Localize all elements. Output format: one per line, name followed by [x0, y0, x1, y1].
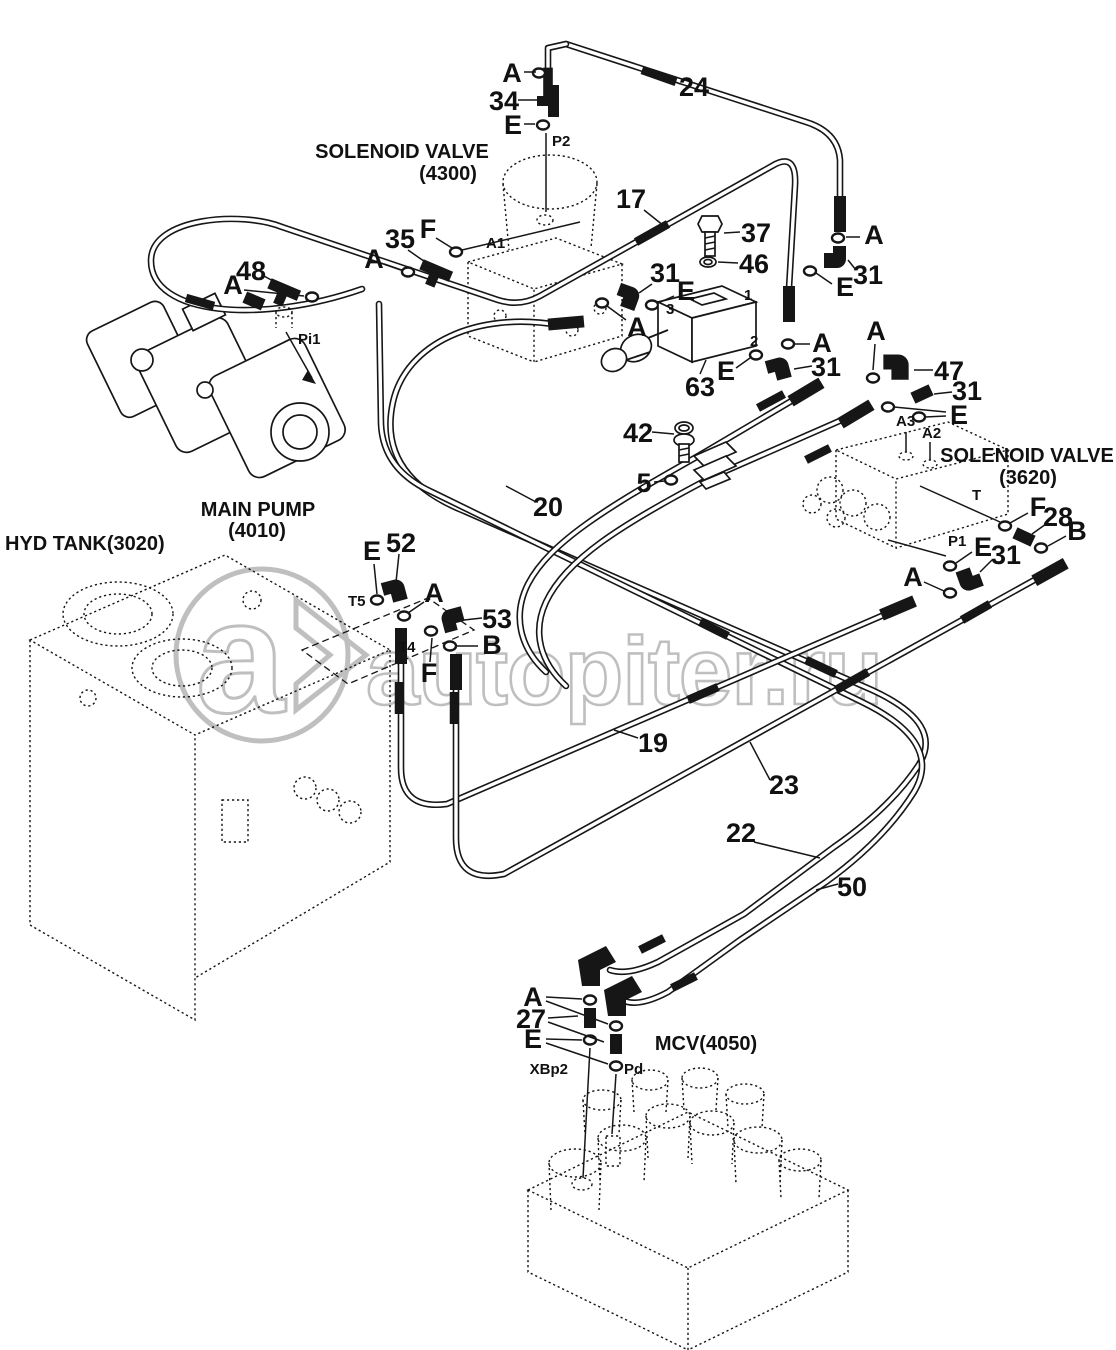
svg-text:24: 24	[679, 72, 709, 102]
parts-diagram-page: a autopiter.ru	[0, 0, 1116, 1350]
hose24-end-fitting	[834, 196, 846, 232]
svg-text:A: A	[866, 316, 886, 346]
port-1: 1	[744, 287, 752, 304]
main-pump	[83, 293, 349, 481]
port-xbp2: XBp2	[530, 1061, 568, 1078]
elbow-52	[381, 577, 408, 604]
svg-text:B: B	[482, 630, 502, 660]
elbow-47	[883, 355, 908, 380]
oring-a-top	[533, 69, 545, 78]
port-t4: T4	[398, 639, 416, 656]
callout-E-t5: E	[363, 536, 381, 594]
oring-a-pd	[610, 1022, 622, 1031]
callout-A-top: A	[502, 58, 536, 88]
hose19-end-fitting	[879, 595, 917, 620]
elbow-31-p1	[956, 565, 984, 593]
port-a1: A1	[486, 235, 505, 252]
fittings	[242, 44, 1068, 1178]
label-pump-line1: MAIN PUMP	[201, 499, 315, 521]
svg-text:A: A	[424, 578, 444, 608]
oring-a-48	[306, 293, 318, 302]
svg-text:A: A	[502, 58, 522, 88]
bolt-42	[674, 422, 694, 462]
svg-text:31: 31	[650, 258, 680, 288]
callout-31-port2: 31	[794, 352, 841, 382]
svg-text:E: E	[524, 1024, 542, 1054]
callout-46: 46	[718, 249, 769, 279]
oring-a-24end	[832, 234, 844, 243]
svg-text:63: 63	[685, 372, 715, 402]
port-p2: P2	[552, 133, 570, 150]
diagram-canvas: a autopiter.ru	[0, 0, 1116, 1350]
label-pump-line2: (4010)	[228, 520, 286, 542]
svg-text:A: A	[864, 220, 884, 250]
svg-text:E: E	[363, 536, 381, 566]
callout-A-47: A	[866, 316, 886, 370]
callout-F-35: F	[420, 214, 452, 248]
callout-E-top: E	[504, 110, 535, 140]
oring-e-pd	[610, 1062, 622, 1071]
svg-text:F: F	[421, 658, 438, 688]
svg-text:22: 22	[726, 818, 756, 848]
oring-b-t	[1035, 544, 1047, 553]
label-sv3620-line1: SOLENOID VALVE	[940, 445, 1114, 467]
svg-text:E: E	[950, 400, 968, 430]
oring-e-a3	[882, 403, 894, 412]
label-sv4300-line1: SOLENOID VALVE	[315, 141, 489, 163]
callout-42: 42	[623, 418, 674, 448]
svg-text:A: A	[903, 562, 923, 592]
elbow-31-port2	[765, 355, 792, 382]
svg-text:31: 31	[991, 540, 1021, 570]
svg-text:E: E	[836, 272, 854, 302]
callout-17: 17	[616, 184, 664, 226]
callout-A-p1: A	[903, 562, 944, 592]
port-pi1: Pi1	[298, 331, 321, 348]
callout-22: 22	[726, 818, 820, 858]
oring-a-xbp2	[584, 996, 596, 1005]
callout-A-t4: A	[408, 578, 444, 613]
oring-e-port2	[750, 351, 762, 360]
oring-f-35	[450, 248, 462, 257]
svg-text:31: 31	[853, 260, 883, 290]
oring-f-t4	[425, 627, 437, 636]
svg-text:17: 17	[616, 184, 646, 214]
callout-52: 52	[386, 528, 416, 582]
solenoid-valve-4300	[468, 155, 622, 362]
hoses	[151, 44, 1056, 1003]
label-sv4300-line2: (4300)	[419, 163, 477, 185]
hose20-end-fitting	[548, 315, 585, 330]
xbp2-port-line	[583, 1048, 590, 1178]
port-pd: Pd	[624, 1061, 643, 1078]
mcv-block	[528, 1068, 848, 1350]
callouts: 24 17 34 A E 35 F A 48 A 37 46 31 E A A …	[223, 58, 1087, 1064]
fitting-31-47stack	[910, 384, 933, 403]
svg-text:23: 23	[769, 770, 799, 800]
port-t: T	[972, 487, 981, 504]
oring-a-port3	[596, 299, 608, 308]
svg-text:37: 37	[741, 218, 771, 248]
svg-text:42: 42	[623, 418, 653, 448]
oring-a-47	[867, 374, 879, 383]
oring-5	[665, 476, 677, 485]
svg-text:46: 46	[739, 249, 769, 279]
connector-27-pd	[610, 1034, 622, 1054]
svg-text:20: 20	[533, 492, 563, 522]
a1-port-line	[462, 222, 580, 250]
callout-E-24end: E	[816, 272, 854, 302]
clamp-5	[694, 442, 736, 489]
bolt-37	[698, 216, 722, 256]
callout-A-port3: A	[607, 306, 647, 342]
svg-text:A: A	[627, 312, 647, 342]
oring-b-53	[444, 642, 456, 651]
svg-text:35: 35	[385, 224, 415, 254]
oring-e-p1	[944, 562, 956, 571]
callout-5: 5	[636, 468, 665, 498]
svg-text:E: E	[504, 110, 522, 140]
label-sv3620-line2: (3620)	[999, 467, 1057, 489]
callout-31-port3: 31	[639, 258, 680, 293]
nut-46	[700, 257, 716, 267]
port-2: 2	[750, 333, 758, 350]
svg-text:31: 31	[811, 352, 841, 382]
hose17-end-fitting	[783, 286, 795, 322]
callout-A-24end: A	[846, 220, 884, 250]
t-port-line	[920, 486, 1000, 522]
callout-48: 48	[236, 256, 282, 286]
oring-a-port2	[782, 340, 794, 349]
watermark-logo-letter: a	[196, 567, 286, 746]
callout-23: 23	[750, 742, 799, 800]
hose-24	[566, 44, 840, 202]
svg-text:F: F	[420, 214, 437, 244]
callout-37: 37	[724, 218, 771, 248]
hose20-mcv-elbow	[578, 946, 616, 986]
svg-text:E: E	[677, 276, 695, 306]
svg-text:50: 50	[837, 872, 867, 902]
oring-e-24end	[804, 267, 816, 276]
svg-text:A: A	[223, 270, 243, 300]
svg-text:B: B	[1067, 516, 1087, 546]
callout-E-mcv: E	[524, 1024, 608, 1064]
hose23-end-fitting	[1031, 558, 1068, 586]
hose22-mcv-elbow	[604, 976, 642, 1016]
svg-text:19: 19	[638, 728, 668, 758]
oring-e-t5	[371, 596, 383, 605]
port-a3: A3	[896, 413, 915, 430]
port-3: 3	[666, 301, 674, 318]
callout-E-port2: E	[717, 356, 750, 386]
svg-text:52: 52	[386, 528, 416, 558]
elbow-31-port3	[614, 283, 642, 311]
port-p1: P1	[948, 533, 966, 550]
tee-fitting-34	[537, 85, 559, 117]
svg-text:A: A	[364, 244, 384, 274]
callout-F-t: F	[1010, 492, 1046, 523]
hose5b-end-fitting	[837, 400, 874, 429]
oring-f-t	[999, 522, 1011, 531]
hose23-top-fitting	[450, 654, 462, 690]
callout-20: 20	[506, 486, 563, 522]
label-hyd-tank: HYD TANK(3020)	[5, 533, 165, 555]
elbow-31-right-top	[824, 246, 846, 268]
oring-a-35	[402, 268, 414, 277]
port-t5: T5	[348, 593, 366, 610]
callout-63: 63	[685, 360, 715, 402]
svg-text:5: 5	[636, 468, 651, 498]
label-mcv: MCV(4050)	[655, 1033, 757, 1055]
svg-text:E: E	[974, 532, 992, 562]
port-a2: A2	[922, 425, 941, 442]
oring-e-top	[537, 121, 549, 130]
svg-text:E: E	[717, 356, 735, 386]
oring-a-p1	[944, 589, 956, 598]
callout-19: 19	[614, 728, 668, 758]
